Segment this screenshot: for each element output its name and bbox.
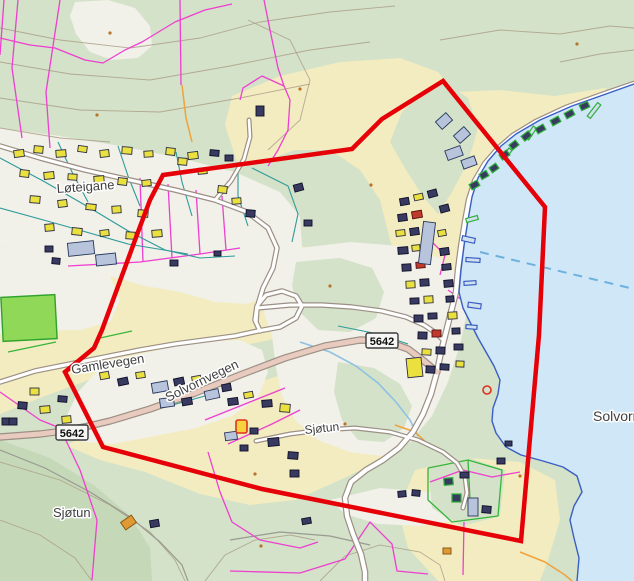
building (117, 377, 128, 386)
building (72, 227, 83, 235)
building (52, 258, 60, 265)
building (420, 279, 429, 287)
height-dot (108, 31, 111, 34)
building (214, 251, 221, 256)
building (398, 491, 406, 498)
building (166, 148, 176, 156)
building (34, 146, 44, 154)
building (410, 298, 419, 304)
building (454, 344, 463, 350)
building (122, 147, 132, 155)
building (422, 349, 431, 355)
building (30, 196, 41, 204)
building (426, 366, 435, 374)
road-badge-text: 5642 (370, 336, 394, 348)
map-canvas[interactable]: 56425642LøteiganeGamlevegenSolvornvegenS… (0, 0, 634, 581)
building (302, 517, 312, 524)
building (178, 158, 188, 166)
building (58, 396, 67, 403)
building (246, 210, 256, 218)
building (444, 478, 454, 486)
building (448, 312, 457, 319)
building (210, 150, 219, 157)
poi-marker-yellow (236, 420, 247, 433)
pier (466, 325, 477, 330)
height-dot (328, 284, 331, 287)
building (232, 198, 241, 205)
building (99, 371, 109, 379)
building (44, 171, 55, 179)
road-badge-text: 5642 (60, 428, 84, 440)
building (100, 230, 110, 237)
building (440, 364, 449, 370)
building (250, 428, 258, 434)
building (58, 199, 68, 207)
building (78, 145, 88, 152)
building (86, 203, 97, 210)
building (18, 402, 28, 410)
map-label-solvorn-place: Solvorn (593, 408, 634, 424)
building (56, 150, 67, 158)
height-dot (575, 42, 578, 45)
building (142, 180, 152, 187)
building (95, 253, 116, 266)
pier (464, 281, 476, 286)
building (399, 197, 409, 205)
building (100, 150, 110, 158)
building (225, 155, 233, 161)
building (442, 264, 452, 271)
building (304, 220, 312, 226)
building (240, 445, 248, 451)
building (181, 397, 192, 406)
building (505, 441, 512, 446)
building (20, 170, 30, 178)
building (149, 519, 159, 527)
building (412, 490, 420, 497)
map-label-sjotun-place: Sjøtun (53, 505, 91, 520)
building (452, 328, 460, 334)
building (446, 296, 454, 303)
height-dot (298, 87, 301, 90)
building (290, 470, 299, 477)
building (411, 210, 422, 219)
building (452, 494, 461, 502)
building (221, 383, 231, 391)
building (398, 247, 409, 255)
building (436, 347, 445, 354)
building (262, 400, 273, 408)
building (396, 230, 406, 237)
height-dot (253, 472, 256, 475)
building (432, 330, 441, 337)
building (443, 548, 451, 554)
building (244, 391, 254, 398)
building (268, 438, 280, 447)
height-dot (369, 183, 372, 186)
building (406, 281, 415, 288)
building (228, 397, 239, 405)
building (118, 177, 128, 185)
building (45, 224, 55, 232)
building (438, 229, 447, 236)
building (456, 361, 464, 367)
building (62, 416, 72, 424)
pier (468, 302, 482, 309)
building (170, 260, 178, 266)
building (444, 280, 454, 288)
building (14, 149, 25, 157)
building (468, 498, 478, 516)
building (45, 246, 53, 252)
building (406, 357, 423, 377)
building (144, 151, 153, 158)
building (2, 418, 9, 425)
building (414, 315, 423, 322)
sports-field (1, 295, 57, 342)
building (424, 296, 433, 303)
building (428, 313, 437, 319)
building (402, 264, 411, 272)
building (280, 404, 291, 413)
building (30, 388, 39, 395)
height-dot (518, 474, 521, 477)
building (112, 206, 121, 214)
building (398, 213, 408, 221)
map-viewport[interactable]: 56425642LøteiganeGamlevegenSolvornvegenS… (0, 0, 634, 581)
building (136, 371, 146, 378)
building (188, 151, 199, 159)
building (460, 472, 469, 478)
building (256, 106, 264, 116)
building (482, 506, 492, 514)
building (40, 406, 51, 414)
building (440, 247, 450, 255)
building (218, 186, 228, 194)
pier (466, 258, 480, 263)
building (152, 230, 163, 238)
building (67, 241, 94, 257)
building (410, 227, 420, 235)
height-dot (343, 422, 346, 425)
building (413, 193, 423, 201)
building (225, 431, 238, 441)
height-dot (95, 113, 98, 116)
building (288, 452, 299, 460)
building (418, 332, 427, 339)
height-dot (259, 544, 262, 547)
building (412, 245, 421, 252)
building (497, 458, 505, 464)
